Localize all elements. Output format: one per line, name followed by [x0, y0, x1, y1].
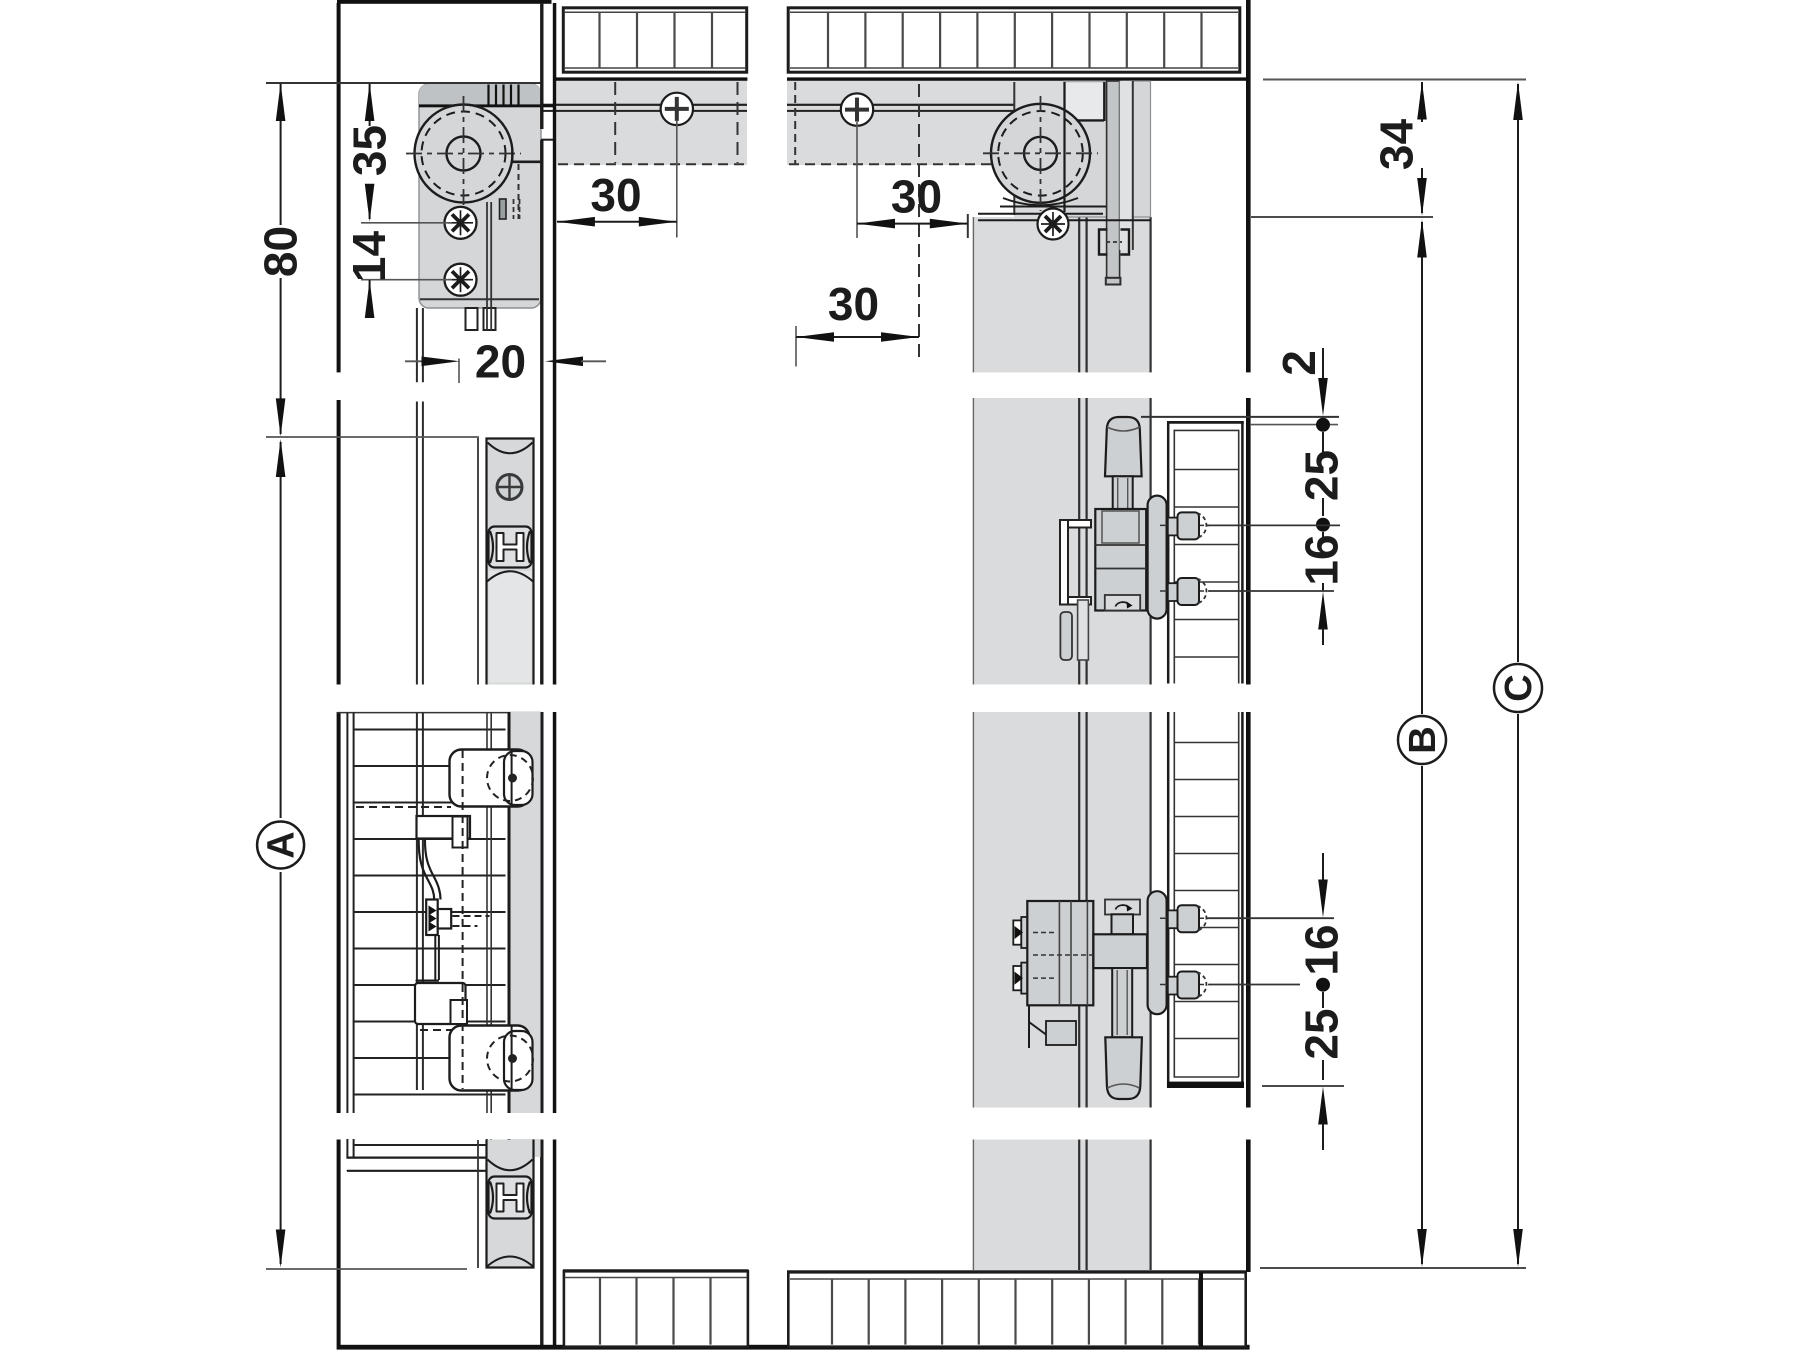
svg-text:B: B [1402, 726, 1444, 753]
svg-text:14: 14 [343, 231, 395, 283]
svg-text:30: 30 [891, 171, 942, 223]
svg-text:25: 25 [1296, 450, 1348, 501]
svg-text:C: C [1498, 674, 1540, 701]
svg-text:25: 25 [1296, 1008, 1348, 1059]
svg-text:2: 2 [1273, 350, 1325, 376]
svg-text:30: 30 [828, 278, 879, 330]
svg-text:16: 16 [1296, 924, 1348, 975]
svg-text:34: 34 [1371, 119, 1423, 171]
svg-text:80: 80 [255, 226, 307, 277]
svg-text:30: 30 [590, 169, 641, 221]
svg-text:20: 20 [475, 336, 526, 388]
svg-text:35: 35 [344, 125, 396, 176]
svg-text:16: 16 [1296, 534, 1348, 585]
svg-text:A: A [261, 831, 303, 858]
